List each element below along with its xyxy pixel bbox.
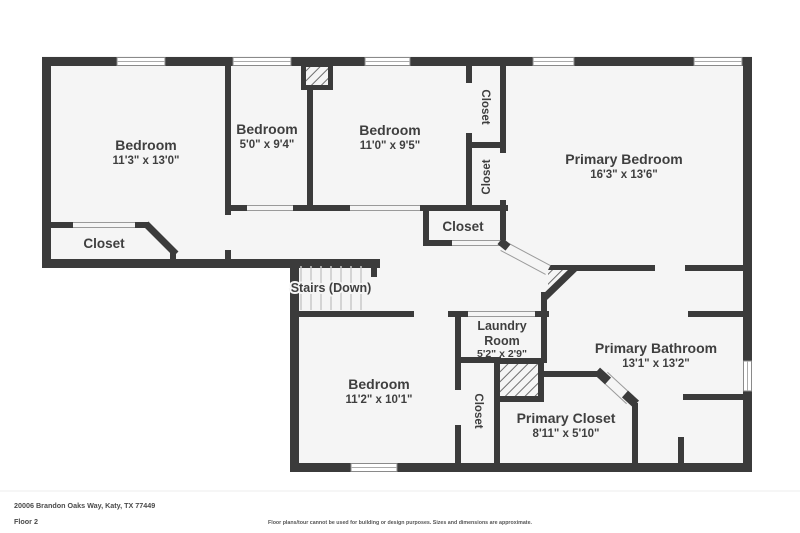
bedroom2-label: Bedroom — [236, 121, 297, 137]
footer: 20006 Brandon Oaks Way, Katy, TX 77449 F… — [0, 491, 800, 526]
floorplan-svg: Bedroom 11'3" x 13'0" Bedroom 5'0" x 9'4… — [0, 0, 800, 533]
bedroom1-label: Bedroom — [115, 137, 176, 153]
primary-closet-label: Primary Closet — [517, 410, 616, 426]
closet-lower-label: Closet — [481, 159, 493, 194]
footer-disclaimer: Floor plans/tour cannot be used for buil… — [268, 520, 533, 526]
bedroom4-dims: 11'2" x 10'1" — [346, 394, 413, 406]
window-marker — [744, 361, 752, 391]
closet-upper-label: Closet — [479, 89, 491, 124]
floorplan-page: Bedroom 11'3" x 13'0" Bedroom 5'0" x 9'4… — [0, 0, 800, 533]
bedroom4-closet-label: Closet — [472, 393, 484, 428]
stairs-label: Stairs (Down) — [291, 281, 372, 295]
mechanical-hatch — [494, 358, 544, 402]
bedroom1-closet-label: Closet — [83, 236, 125, 251]
primary-bathroom-dims: 13'1" x 13'2" — [622, 358, 690, 370]
primary-bathroom-label: Primary Bathroom — [595, 340, 717, 356]
window-marker — [365, 58, 410, 66]
window-marker — [694, 58, 742, 66]
footer-floor-label: Floor 2 — [14, 517, 38, 526]
bedroom1-dims: 11'3" x 13'0" — [113, 155, 180, 167]
laundry-label-line2: Room — [484, 334, 519, 348]
window-marker — [233, 58, 291, 66]
hall-closet-label: Closet — [442, 219, 484, 234]
window-marker — [117, 58, 165, 66]
laundry-label-line1: Laundry — [477, 319, 526, 333]
window-marker — [351, 464, 397, 472]
chimney-hatch — [301, 62, 333, 90]
bedroom3-label: Bedroom — [359, 122, 420, 138]
primary-closet-dims: 8'11" x 5'10" — [533, 428, 600, 440]
window-marker — [533, 58, 574, 66]
primary-bedroom-dims: 16'3" x 13'6" — [590, 169, 658, 181]
bedroom4-label: Bedroom — [348, 376, 409, 392]
primary-bedroom-label: Primary Bedroom — [565, 151, 682, 167]
footer-address: 20006 Brandon Oaks Way, Katy, TX 77449 — [14, 501, 155, 510]
bedroom3-dims: 11'0" x 9'5" — [360, 140, 421, 152]
laundry-dims: 5'2" x 2'9" — [477, 348, 527, 360]
bedroom2-dims: 5'0" x 9'4" — [240, 139, 295, 151]
